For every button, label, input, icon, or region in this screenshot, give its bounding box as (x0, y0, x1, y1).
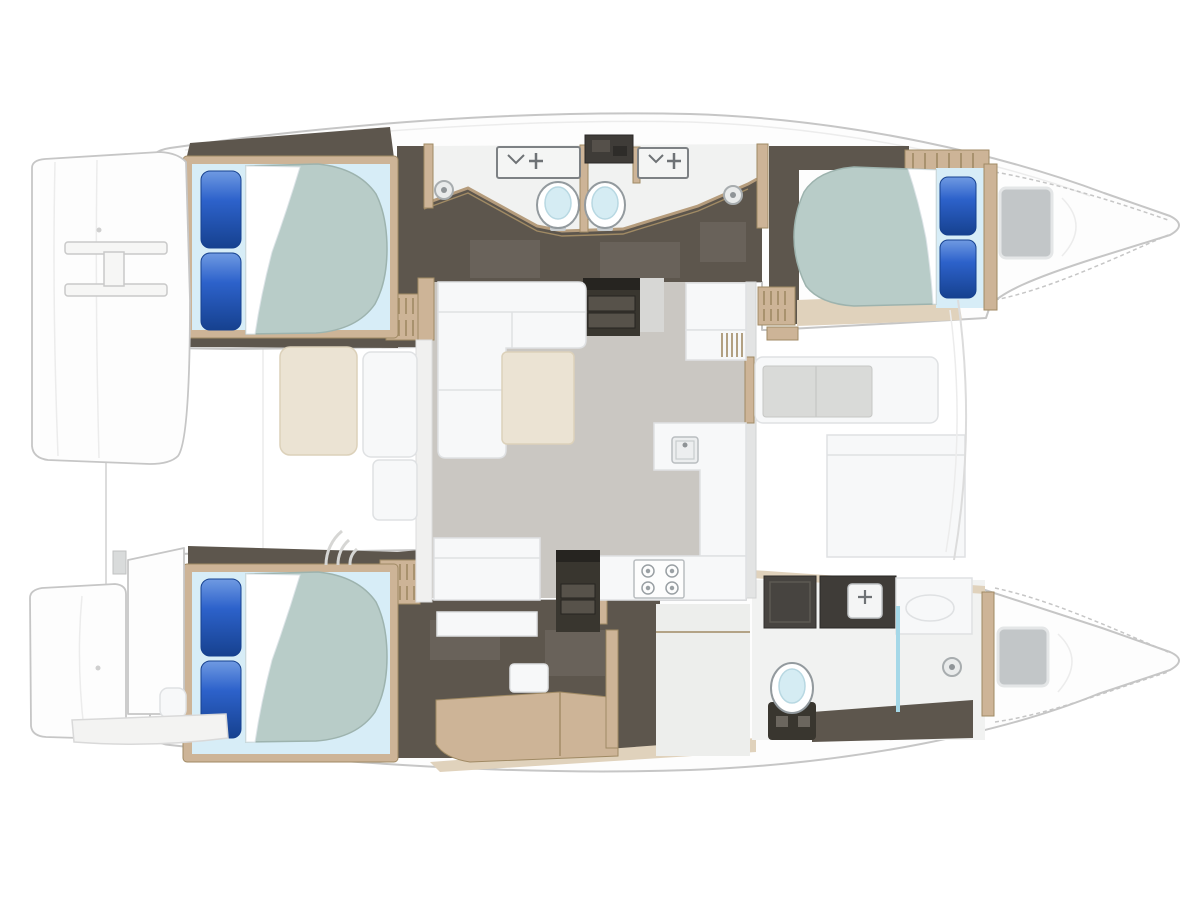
salon-right-door-frame (745, 357, 754, 423)
foredeck-bench (755, 357, 938, 423)
bathroom-entry-wall (606, 630, 618, 748)
coffee-table (502, 352, 574, 444)
owner-sink-counter (820, 576, 896, 628)
stern-fitting (113, 551, 126, 574)
bottom-bow-hatch (998, 628, 1048, 686)
swim-platform-top (32, 152, 190, 464)
cabinet-detail (613, 146, 627, 156)
cabinet-detail (592, 140, 610, 152)
deck-fitting-dot (96, 666, 101, 671)
transom-step-band (72, 714, 228, 744)
pillow (201, 253, 241, 330)
bench-grey-cushion (763, 366, 872, 417)
salon-right-wall (746, 282, 756, 598)
locker-base (767, 327, 798, 340)
shower-drain-forward (724, 186, 742, 204)
aft-guest-cabin (183, 156, 398, 338)
salon (416, 278, 756, 632)
galley-faucet (683, 443, 688, 448)
cabin-top-strip (769, 146, 909, 170)
floor-plan-canvas (0, 0, 1200, 900)
pillow (201, 171, 241, 248)
pillow (940, 240, 976, 298)
toilet-base-knob (776, 716, 788, 727)
floor-panel (545, 630, 605, 676)
shower-drain-owner (943, 658, 961, 676)
louvered-cabinet-salon (686, 283, 746, 360)
bathroom-wall-left (424, 144, 433, 208)
floor-panel (470, 240, 540, 278)
top-bow-hatch (1000, 188, 1052, 258)
lounge-cushion-cream (280, 347, 357, 455)
pillow (201, 579, 241, 656)
bow-bulkhead (982, 592, 994, 716)
bench-seat (434, 538, 540, 600)
salon-door-frame-left (418, 278, 434, 340)
bed-head-bulkhead (984, 164, 997, 310)
stove-counter (596, 556, 746, 600)
bathroom-wall-right (757, 144, 768, 228)
sink-unit-aft (497, 147, 580, 178)
owner-bathroom (752, 570, 994, 742)
vanity-desk (436, 692, 618, 762)
lounge-seat-white (363, 352, 417, 457)
salon-left-wall (416, 340, 432, 602)
dressing-area-floor (656, 604, 750, 756)
seat-box (373, 460, 417, 520)
toilet-base-knob (798, 716, 810, 727)
companionway-steps-top (583, 278, 640, 336)
shower-drain-aft (435, 181, 453, 199)
transom-seat (160, 688, 186, 718)
deck-fitting-dot (97, 228, 102, 233)
stair-side-panel (640, 278, 664, 332)
pillow (940, 177, 976, 235)
owner-toilet (768, 663, 816, 740)
foredeck-storage-box (827, 435, 965, 557)
floor-panel (700, 222, 746, 262)
vanity-counter (896, 578, 972, 634)
stool (510, 664, 548, 692)
floor-panel (600, 242, 680, 278)
double-bed-forward (794, 164, 997, 310)
mirror-cabinet (764, 576, 816, 628)
sink-unit-forward (638, 148, 688, 178)
yacht-floor-plan (0, 0, 1200, 900)
companionway-steps-bottom (556, 550, 600, 632)
storage-cabinet (437, 612, 537, 636)
